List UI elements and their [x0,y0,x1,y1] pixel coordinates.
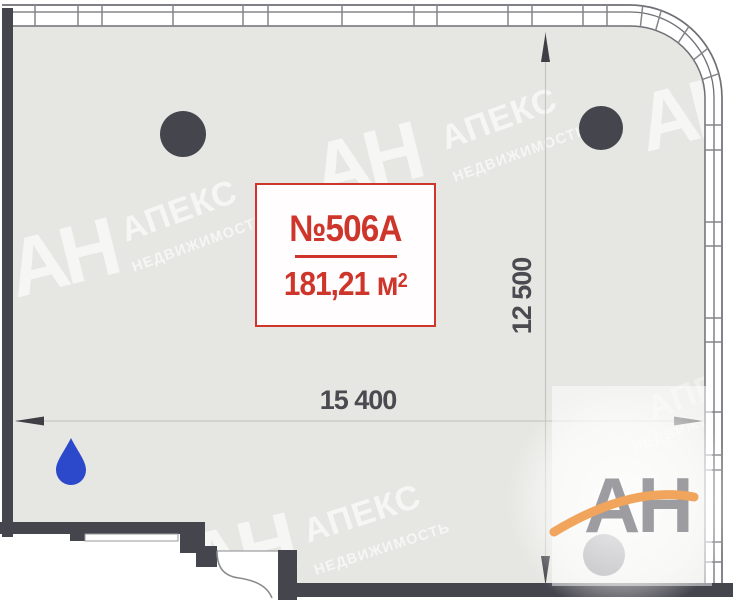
unit-label-box: №506А 181,21 м2 [255,183,436,327]
floor-plan-page: АН АПЕКС НЕДВИЖИМОСТЬ АН АПЕКС НЕДВИЖИМО… [0,0,733,600]
wall-left [2,8,13,537]
dimension-width-label: 15 400 [320,385,397,415]
unit-area-exponent: 2 [398,270,407,292]
unit-label-divider [295,255,397,258]
unit-area: 181,21 м2 [284,267,407,300]
mullion-ticks-top [35,5,607,26]
column-marker-icon [579,106,623,150]
dimension-depth-label: 12 500 [507,258,537,335]
unit-area-value: 181,21 м [284,265,398,302]
wall-sill-tab [70,534,85,541]
wall-door-step [196,546,217,567]
window-sill-strip [85,534,178,541]
wall-bottom-left [0,522,205,534]
column-marker-icon [160,111,206,157]
unit-number: №506А [289,210,401,247]
